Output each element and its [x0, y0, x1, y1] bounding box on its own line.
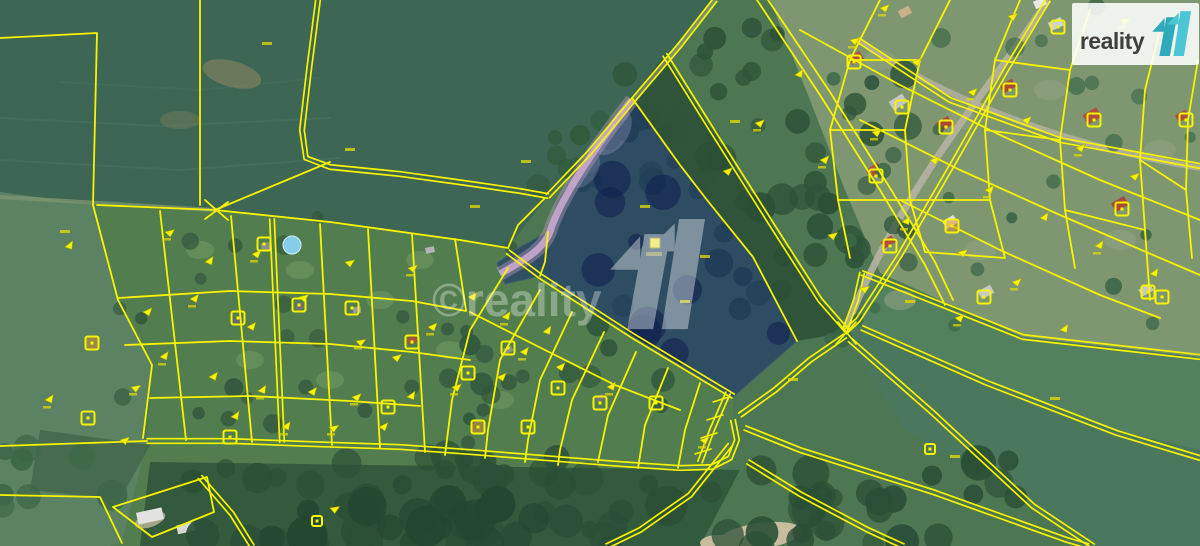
brand-logo-text: reality [1080, 16, 1144, 53]
swimming-pool-icon [283, 236, 301, 254]
brand-logo: reality [1072, 3, 1199, 65]
map-view[interactable]: ©reality reality [0, 0, 1200, 546]
watermark-text: ©reality [432, 274, 602, 326]
11-logo-icon [1147, 10, 1191, 58]
map-canvas[interactable]: ©reality [0, 0, 1200, 546]
